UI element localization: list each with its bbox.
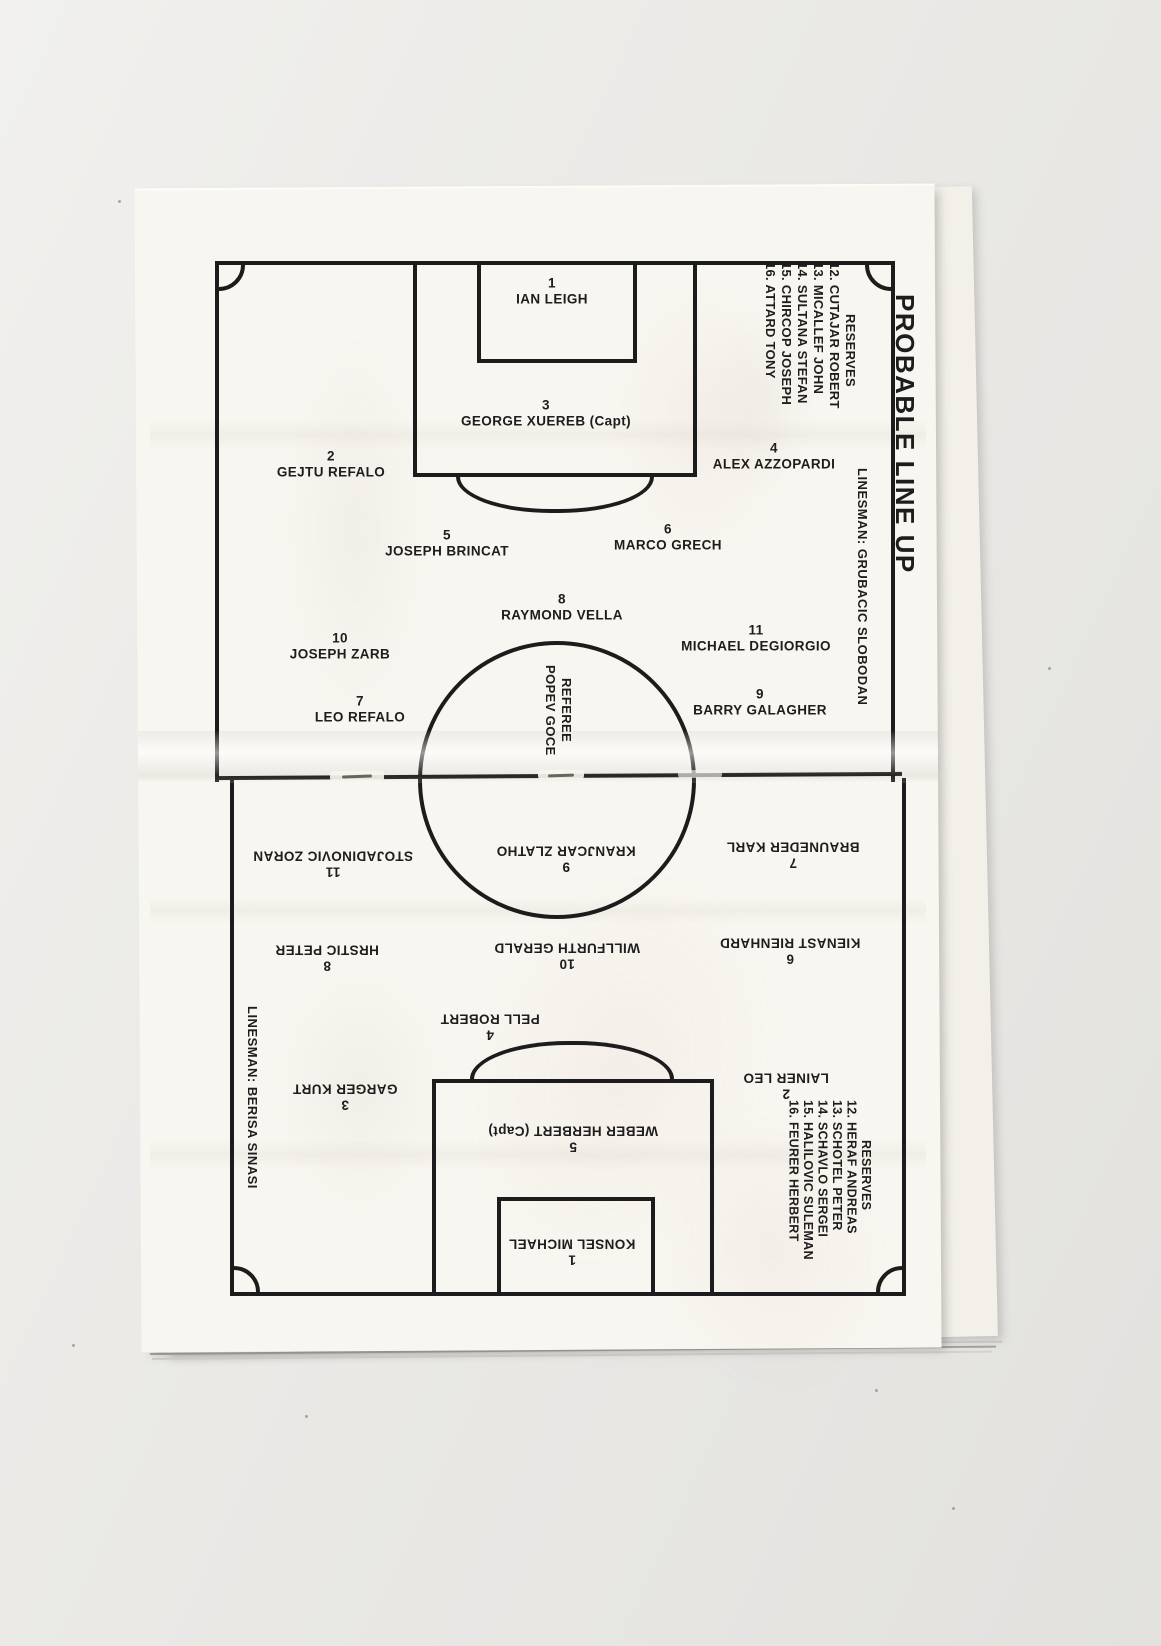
player-number: 7 bbox=[726, 855, 859, 871]
player-name: LAINER LEO bbox=[743, 1071, 829, 1086]
player-name: STOJADINOVIC ZORAN bbox=[253, 849, 413, 864]
player-name: WILLFURTH GERALD bbox=[494, 941, 640, 956]
player-number: 1 bbox=[509, 1252, 636, 1268]
player-label: 6KIENAST RIENHARD bbox=[720, 936, 861, 967]
player-label: 6MARCO GRECH bbox=[614, 522, 722, 553]
player-name: JOSEPH BRINCAT bbox=[385, 543, 509, 558]
player-name: WEBER HERBERT (Capt) bbox=[488, 1124, 658, 1139]
player-number: 5 bbox=[488, 1139, 658, 1155]
player-label: 8HRSTIC PETER bbox=[275, 943, 379, 974]
player-label: 10WILLFURTH GERALD bbox=[494, 941, 640, 972]
reserve-player: 15. HALILOVIC SULEMAN bbox=[801, 1100, 816, 1260]
reserves-title: RESERVES bbox=[859, 1100, 874, 1260]
player-label: 5JOSEPH BRINCAT bbox=[385, 528, 509, 559]
player-name: IAN LEIGH bbox=[516, 291, 588, 306]
player-number: 11 bbox=[253, 864, 413, 880]
player-label: 11STOJADINOVIC ZORAN bbox=[253, 849, 413, 880]
player-name: MICHAEL DEGIORGIO bbox=[681, 638, 831, 653]
linesman-away-label: LINESMAN: BERISA SINASI bbox=[245, 1006, 260, 1189]
player-label: 9BARRY GALAGHER bbox=[693, 687, 827, 718]
player-number: 9 bbox=[693, 687, 827, 703]
player-number: 8 bbox=[501, 592, 623, 608]
reserve-player: 15. CHIRCOP JOSEPH bbox=[778, 262, 794, 409]
reserve-player: 16. FEURER HERBERT bbox=[786, 1100, 801, 1260]
player-name: HRSTIC PETER bbox=[275, 943, 379, 958]
player-name: KIENAST RIENHARD bbox=[720, 936, 861, 951]
reserve-player: 14. SCHAVLO SERGEI bbox=[815, 1100, 830, 1260]
reserve-player: 13. MICALLEF JOHN bbox=[810, 262, 826, 409]
player-name: RAYMOND VELLA bbox=[501, 607, 623, 622]
player-label: 8RAYMOND VELLA bbox=[501, 592, 623, 623]
linesman-home-label: LINESMAN: GRUBACIC SLOBODAN bbox=[855, 468, 870, 705]
player-number: 1 bbox=[516, 276, 588, 292]
player-number: 2 bbox=[277, 449, 385, 465]
player-label: 4PELL ROBERT bbox=[440, 1012, 539, 1043]
player-name: BRAUNEDER KARL bbox=[726, 840, 859, 855]
reserve-player: 12. HERAF ANDREAS bbox=[844, 1100, 859, 1260]
text-layer: PROBABLE LINE UP LINESMAN: GRUBACIC SLOB… bbox=[0, 0, 1161, 1646]
player-name: PELL ROBERT bbox=[440, 1012, 539, 1027]
reserve-player: 12. CUTAJAR ROBERT bbox=[826, 262, 842, 409]
player-number: 6 bbox=[614, 522, 722, 538]
reserves-title: RESERVES bbox=[842, 262, 858, 409]
player-number: 4 bbox=[440, 1027, 539, 1043]
reserve-player: 16. ATTARD TONY bbox=[762, 262, 778, 409]
reserve-player: 13. SCHOTEL PETER bbox=[830, 1100, 845, 1260]
player-name: KRANJCAR ZLATHO bbox=[496, 844, 635, 859]
player-number: 4 bbox=[713, 441, 836, 457]
reserves-list-home: RESERVES12. CUTAJAR ROBERT13. MICALLEF J… bbox=[762, 262, 858, 409]
player-name: LEO REFALO bbox=[315, 709, 405, 724]
player-label: 5WEBER HERBERT (Capt) bbox=[488, 1124, 658, 1155]
player-name: GEORGE XUEREB (Capt) bbox=[461, 413, 631, 428]
player-name: GARGER KURT bbox=[293, 1082, 398, 1097]
player-label: 2GEJTU REFALO bbox=[277, 449, 385, 480]
page-title: PROBABLE LINE UP bbox=[889, 294, 920, 574]
player-label: 3GEORGE XUEREB (Capt) bbox=[461, 398, 631, 429]
player-label: 1KONSEL MICHAEL bbox=[509, 1237, 636, 1268]
player-name: ALEX AZZOPARDI bbox=[713, 456, 836, 471]
player-number: 5 bbox=[385, 528, 509, 544]
player-number: 11 bbox=[681, 623, 831, 639]
player-label: 1IAN LEIGH bbox=[516, 276, 588, 307]
reserve-player: 14. SULTANA STEFAN bbox=[794, 262, 810, 409]
referee-label: REFEREE POPEV GOCE bbox=[542, 656, 574, 764]
scanned-programme-page: PROBABLE LINE UP LINESMAN: GRUBACIC SLOB… bbox=[0, 0, 1161, 1646]
player-name: MARCO GRECH bbox=[614, 537, 722, 552]
player-number: 9 bbox=[496, 859, 635, 875]
player-number: 8 bbox=[275, 958, 379, 974]
player-name: KONSEL MICHAEL bbox=[509, 1237, 636, 1252]
referee-name: POPEV GOCE bbox=[542, 656, 558, 764]
reserves-list-away: RESERVES12. HERAF ANDREAS13. SCHOTEL PET… bbox=[786, 1100, 873, 1260]
player-number: 3 bbox=[461, 398, 631, 414]
player-label: 11MICHAEL DEGIORGIO bbox=[681, 623, 831, 654]
referee-title: REFEREE bbox=[558, 656, 574, 764]
player-number: 10 bbox=[290, 631, 390, 647]
player-number: 10 bbox=[494, 956, 640, 972]
player-number: 2 bbox=[743, 1086, 829, 1102]
player-label: 7LEO REFALO bbox=[315, 694, 405, 725]
player-number: 3 bbox=[293, 1097, 398, 1113]
player-name: JOSEPH ZARB bbox=[290, 646, 390, 661]
player-label: 4ALEX AZZOPARDI bbox=[713, 441, 836, 472]
player-number: 6 bbox=[720, 951, 861, 967]
player-label: 2LAINER LEO bbox=[743, 1071, 829, 1102]
player-label: 10JOSEPH ZARB bbox=[290, 631, 390, 662]
player-label: 3GARGER KURT bbox=[293, 1082, 398, 1113]
player-label: 9KRANJCAR ZLATHO bbox=[496, 844, 635, 875]
player-name: GEJTU REFALO bbox=[277, 464, 385, 479]
player-number: 7 bbox=[315, 694, 405, 710]
player-label: 7BRAUNEDER KARL bbox=[726, 840, 859, 871]
player-name: BARRY GALAGHER bbox=[693, 702, 827, 717]
